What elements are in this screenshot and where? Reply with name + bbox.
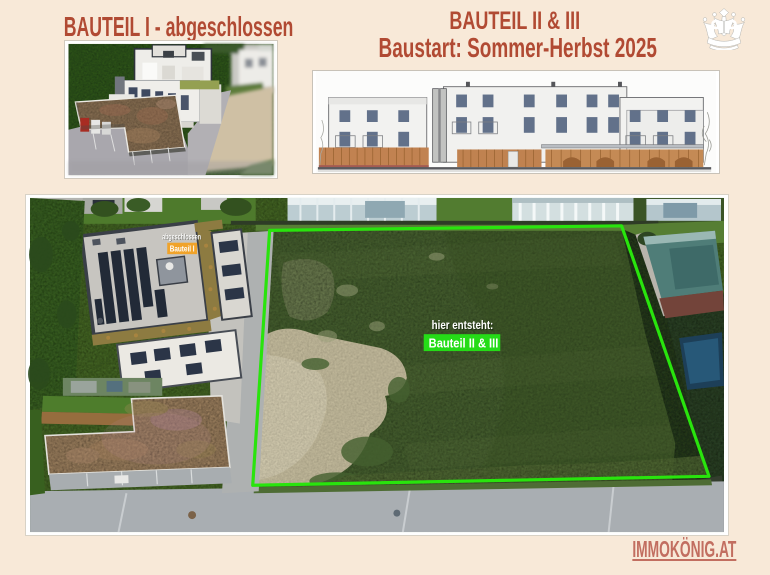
svg-text:abgeschlossen: abgeschlossen [162, 233, 201, 242]
svg-text:Bauteil II & III: Bauteil II & III [429, 336, 499, 351]
svg-text:Bauteil I: Bauteil I [170, 245, 195, 254]
svg-text:hier entsteht:: hier entsteht: [432, 318, 494, 332]
